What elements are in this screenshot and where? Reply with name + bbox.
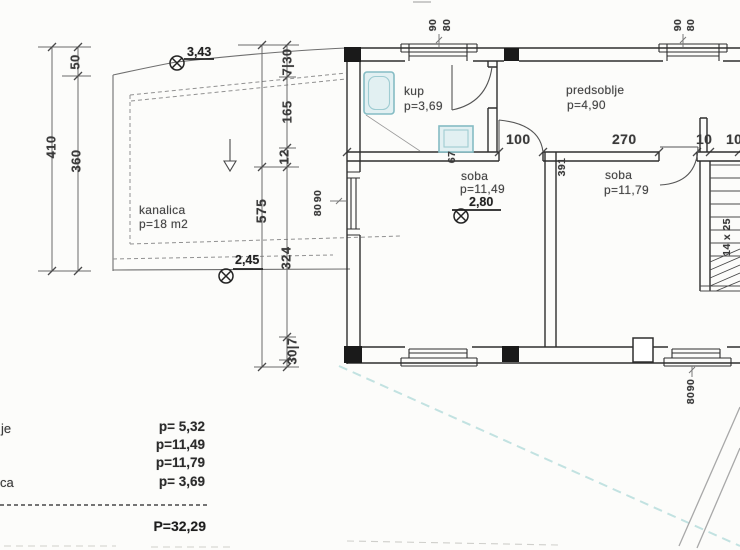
road-boundary-lines [679, 407, 740, 548]
dim-chain-324: 324 [280, 247, 293, 270]
dim-chain-165: 165 [281, 101, 294, 124]
site-dashed-lines [113, 73, 402, 259]
win-top-kup-parapet: 80 [442, 19, 453, 31]
elevation-marker-icon [224, 139, 236, 171]
legend-row-label-1: je [1, 422, 11, 435]
legend-row-value-1: p= 5,32 [139, 420, 205, 434]
dim-chain-7-30: 7|30 [281, 49, 294, 76]
site-boundary [113, 48, 350, 271]
dim-left-360: 360 [70, 150, 83, 173]
room-area-soba-1: p=11,49 [460, 183, 505, 195]
dim-door-100: 100 [506, 132, 531, 146]
dim-wall-270: 270 [612, 132, 637, 146]
room-area-kanalica: p=18 m2 [139, 218, 188, 230]
dim-wall-391: 391 [557, 158, 568, 177]
win-left-parapet: 80 [313, 204, 324, 216]
utility-line-cyan [339, 366, 740, 546]
legend-row-label-4: ca [0, 476, 14, 489]
legend-total-area: P=32,29 [138, 519, 206, 533]
room-area-kup: p=3,69 [404, 100, 443, 112]
faint-scan-lines [4, 2, 558, 547]
room-area-predsoblje: p=4,90 [567, 99, 606, 111]
dim-left-50: 50 [69, 54, 82, 69]
room-label-soba-2: soba [605, 169, 632, 181]
dim-seg-10b: 10 [726, 132, 740, 146]
dim-chain-575: 575 [254, 199, 268, 224]
win-top-kup-width: 90 [428, 19, 439, 31]
benchmark-value-bottom: 2,45 [235, 254, 259, 267]
floorplan-linework [0, 0, 740, 550]
dim-stair-14x25: 14 x 25 [722, 218, 733, 256]
legend-row-value-4: p= 3,69 [139, 475, 205, 489]
dim-chain-12: 12 [278, 149, 291, 164]
survey-marker-icon [170, 56, 501, 283]
shower-diagonal-line [366, 115, 420, 151]
win-bottom-right-parapet: 80 [686, 392, 697, 404]
floor-elevation-value: 2,80 [469, 196, 493, 209]
legend-row-value-3: p=11,79 [139, 456, 205, 470]
dim-seg-10a: 10 [696, 132, 712, 146]
win-top-pred-parapet: 80 [686, 19, 697, 31]
win-bottom-right-width: 90 [686, 379, 697, 391]
dim-chain-30-7: 30|7 [286, 338, 299, 365]
dim-left-410: 410 [45, 136, 58, 159]
floorplan-scan: kup p=3,69 predsoblje p=4,90 soba p=11,4… [0, 0, 740, 550]
room-label-kup: kup [404, 85, 424, 97]
legend-row-value-2: p=11,49 [139, 438, 205, 452]
win-top-pred-width: 90 [673, 19, 684, 31]
dim-jamb-67: 67 [447, 151, 458, 163]
room-area-soba-2: p=11,79 [604, 184, 649, 196]
win-left-width: 90 [313, 190, 324, 202]
room-label-soba-1: soba [461, 170, 488, 182]
benchmark-value-top: 3,43 [187, 46, 211, 59]
room-label-predsoblje: predsoblje [566, 84, 624, 96]
chimney-block [633, 338, 653, 362]
room-label-kanalica: kanalica [139, 204, 185, 216]
